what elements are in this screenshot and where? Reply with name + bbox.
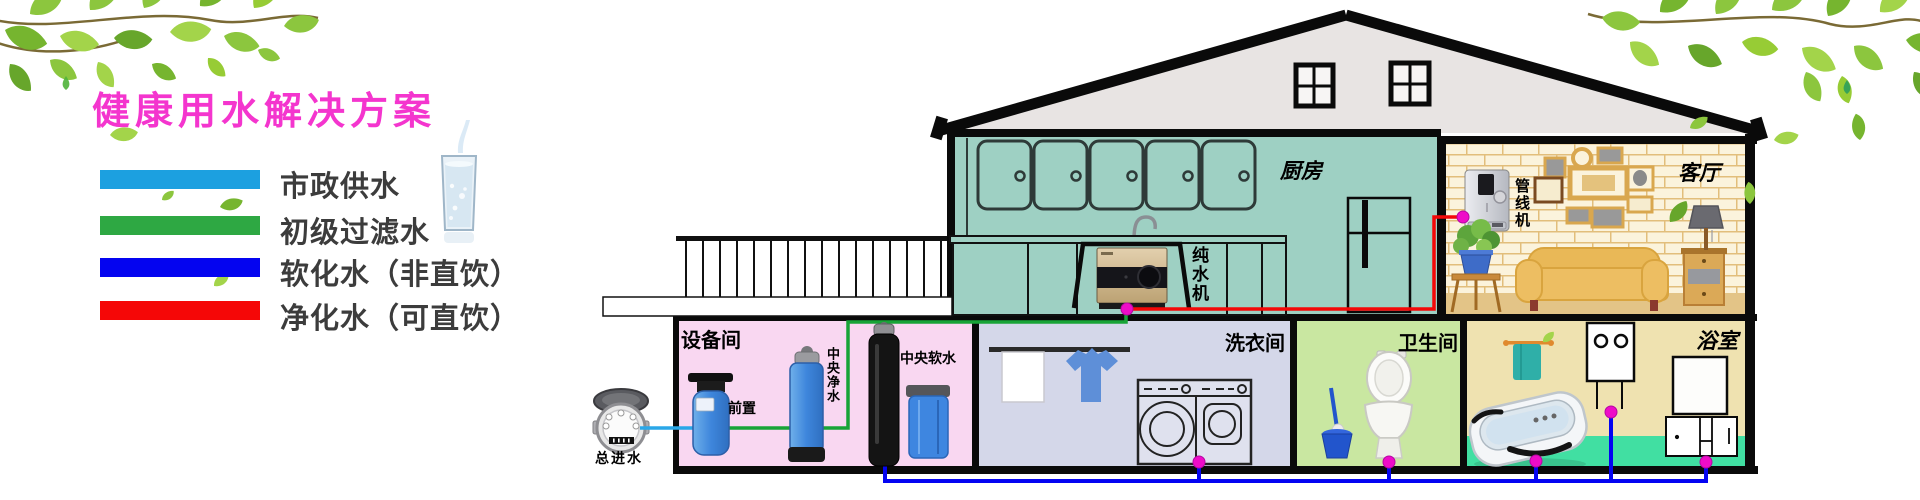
main-inlet-label: 总进水	[595, 448, 643, 468]
page-title: 健康用水解决方案	[92, 80, 436, 135]
central-purifier-label: 中央净水	[822, 347, 841, 403]
vanity-cabinet	[1666, 417, 1737, 456]
legend-label-municipal: 市政供水	[280, 163, 400, 205]
mirror-icon	[1673, 357, 1727, 414]
central-purifier-tank	[788, 346, 825, 462]
living-room-label: 客厅	[1678, 157, 1720, 187]
legend-swatch-municipal	[100, 170, 260, 189]
brine-tank	[906, 385, 950, 458]
equipment-room-label: 设备间	[681, 324, 741, 353]
side-cabinet	[1681, 248, 1727, 305]
kitchen-label: 厨房	[1280, 155, 1322, 185]
toilet-room-label: 卫生间	[1398, 327, 1458, 356]
hanging-towel-icon	[1002, 352, 1044, 402]
foliage-top-right-icon	[1588, 0, 1920, 103]
legend-swatch-purified	[100, 301, 260, 320]
fridge-icon	[1348, 198, 1410, 312]
pure-water-machine	[1097, 248, 1167, 309]
attic-window-icon	[1296, 65, 1333, 106]
bath-room-label: 浴室	[1696, 325, 1738, 355]
pure-water-machine-label: 纯水机	[1186, 246, 1211, 303]
fence	[603, 236, 952, 316]
water-meter-icon	[593, 389, 649, 452]
legend-label-purified: 净化水（可直饮）	[280, 295, 520, 337]
attic-window-icon	[1391, 63, 1429, 104]
legend-swatch-softened	[100, 258, 260, 277]
prefilter-label: 前置	[728, 398, 756, 418]
laundry-room-label: 洗衣间	[1225, 327, 1285, 356]
poster-canvas: .l1{fill:#8CC63E;} .l2{fill:#76B52F;} .l…	[0, 0, 1920, 500]
water-glass-icon	[442, 120, 476, 243]
legend-label-softened: 软化水（非直饮）	[280, 251, 520, 293]
pipeline-machine-label: 管线机	[1512, 178, 1533, 229]
roof	[930, 15, 1768, 141]
central-softener-tank	[869, 322, 899, 466]
central-softener-label: 中央软水	[900, 348, 956, 368]
washing-machines	[1138, 380, 1251, 464]
legend-label-filtered: 初级过滤水	[280, 209, 430, 251]
kitchen-cabinets	[978, 141, 1255, 209]
legend-swatch-filtered	[100, 216, 260, 235]
